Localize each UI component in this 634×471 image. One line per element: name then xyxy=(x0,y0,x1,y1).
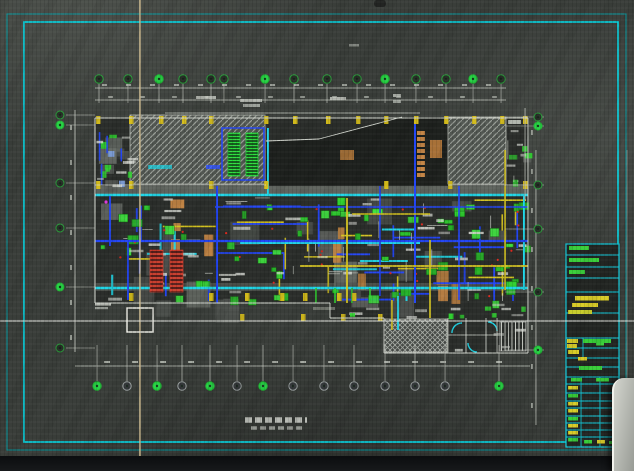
monitor-photo xyxy=(0,0,634,471)
foreground-paper-corner xyxy=(612,378,634,471)
drawing-title-text xyxy=(245,420,307,428)
cad-viewport-canvas[interactable] xyxy=(0,0,634,471)
monitor-bottom-bezel xyxy=(0,456,634,471)
